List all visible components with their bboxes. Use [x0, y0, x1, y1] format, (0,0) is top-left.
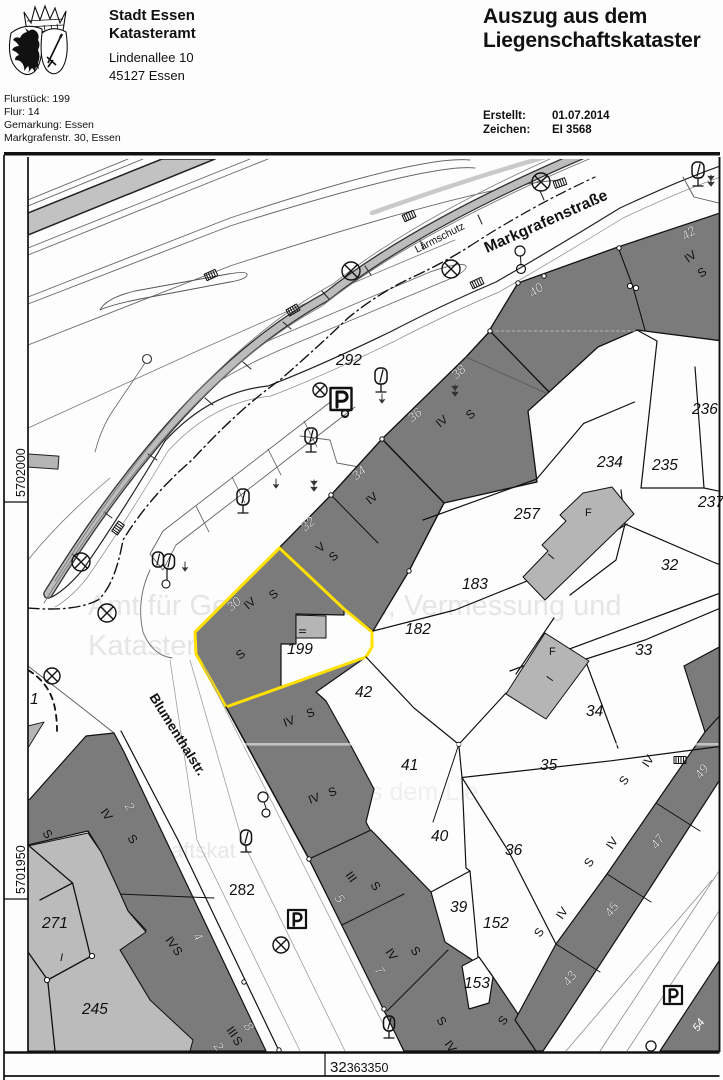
svg-text:36: 36 — [505, 842, 523, 859]
svg-text:33: 33 — [635, 642, 653, 659]
svg-text:IV: IV — [603, 834, 621, 851]
svg-text:237: 237 — [697, 494, 723, 511]
svg-text:II: II — [298, 628, 309, 634]
svg-text:5702000: 5702000 — [14, 448, 28, 497]
svg-text:IV: IV — [553, 904, 571, 921]
svg-text:I: I — [60, 952, 63, 964]
svg-text:S: S — [581, 855, 597, 870]
svg-text:183: 183 — [462, 576, 488, 593]
svg-text:42: 42 — [355, 684, 373, 701]
svg-text:Markgrafenstraße: Markgrafenstraße — [482, 187, 611, 257]
svg-text:1: 1 — [30, 691, 39, 708]
svg-text:182: 182 — [405, 621, 431, 638]
svg-text:32: 32 — [661, 557, 679, 574]
svg-text:236: 236 — [691, 401, 718, 418]
svg-text:S: S — [531, 925, 547, 940]
svg-text:199: 199 — [287, 641, 313, 658]
svg-text:234: 234 — [596, 454, 623, 471]
svg-text:32363350: 32363350 — [330, 1059, 388, 1076]
svg-text:152: 152 — [483, 915, 509, 932]
svg-text:292: 292 — [335, 352, 362, 369]
svg-text:S: S — [616, 773, 632, 788]
svg-text:282: 282 — [229, 882, 255, 899]
svg-text:41: 41 — [401, 757, 418, 774]
svg-text:34: 34 — [586, 703, 604, 720]
svg-text:35: 35 — [540, 757, 558, 774]
svg-text:153: 153 — [464, 975, 490, 992]
svg-text:F: F — [585, 507, 592, 519]
svg-text:271: 271 — [41, 915, 68, 932]
svg-text:257: 257 — [513, 506, 541, 523]
svg-text:245: 245 — [81, 1001, 108, 1018]
svg-text:40: 40 — [431, 828, 449, 845]
svg-text:Blumenthalstr.: Blumenthalstr. — [146, 691, 208, 778]
svg-text:Kataster: Kataster — [88, 630, 196, 662]
svg-text:5701950: 5701950 — [14, 845, 28, 894]
svg-text:39: 39 — [450, 899, 468, 916]
svg-text:235: 235 — [651, 457, 678, 474]
svg-text:F: F — [549, 646, 556, 658]
